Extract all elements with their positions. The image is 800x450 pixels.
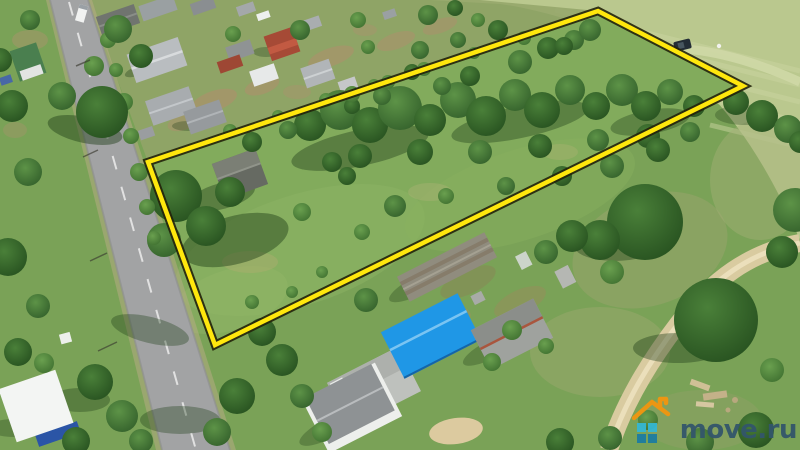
scene-svg [0,0,800,450]
aerial-photo: move.ru [0,0,800,450]
person-dot [717,44,721,48]
